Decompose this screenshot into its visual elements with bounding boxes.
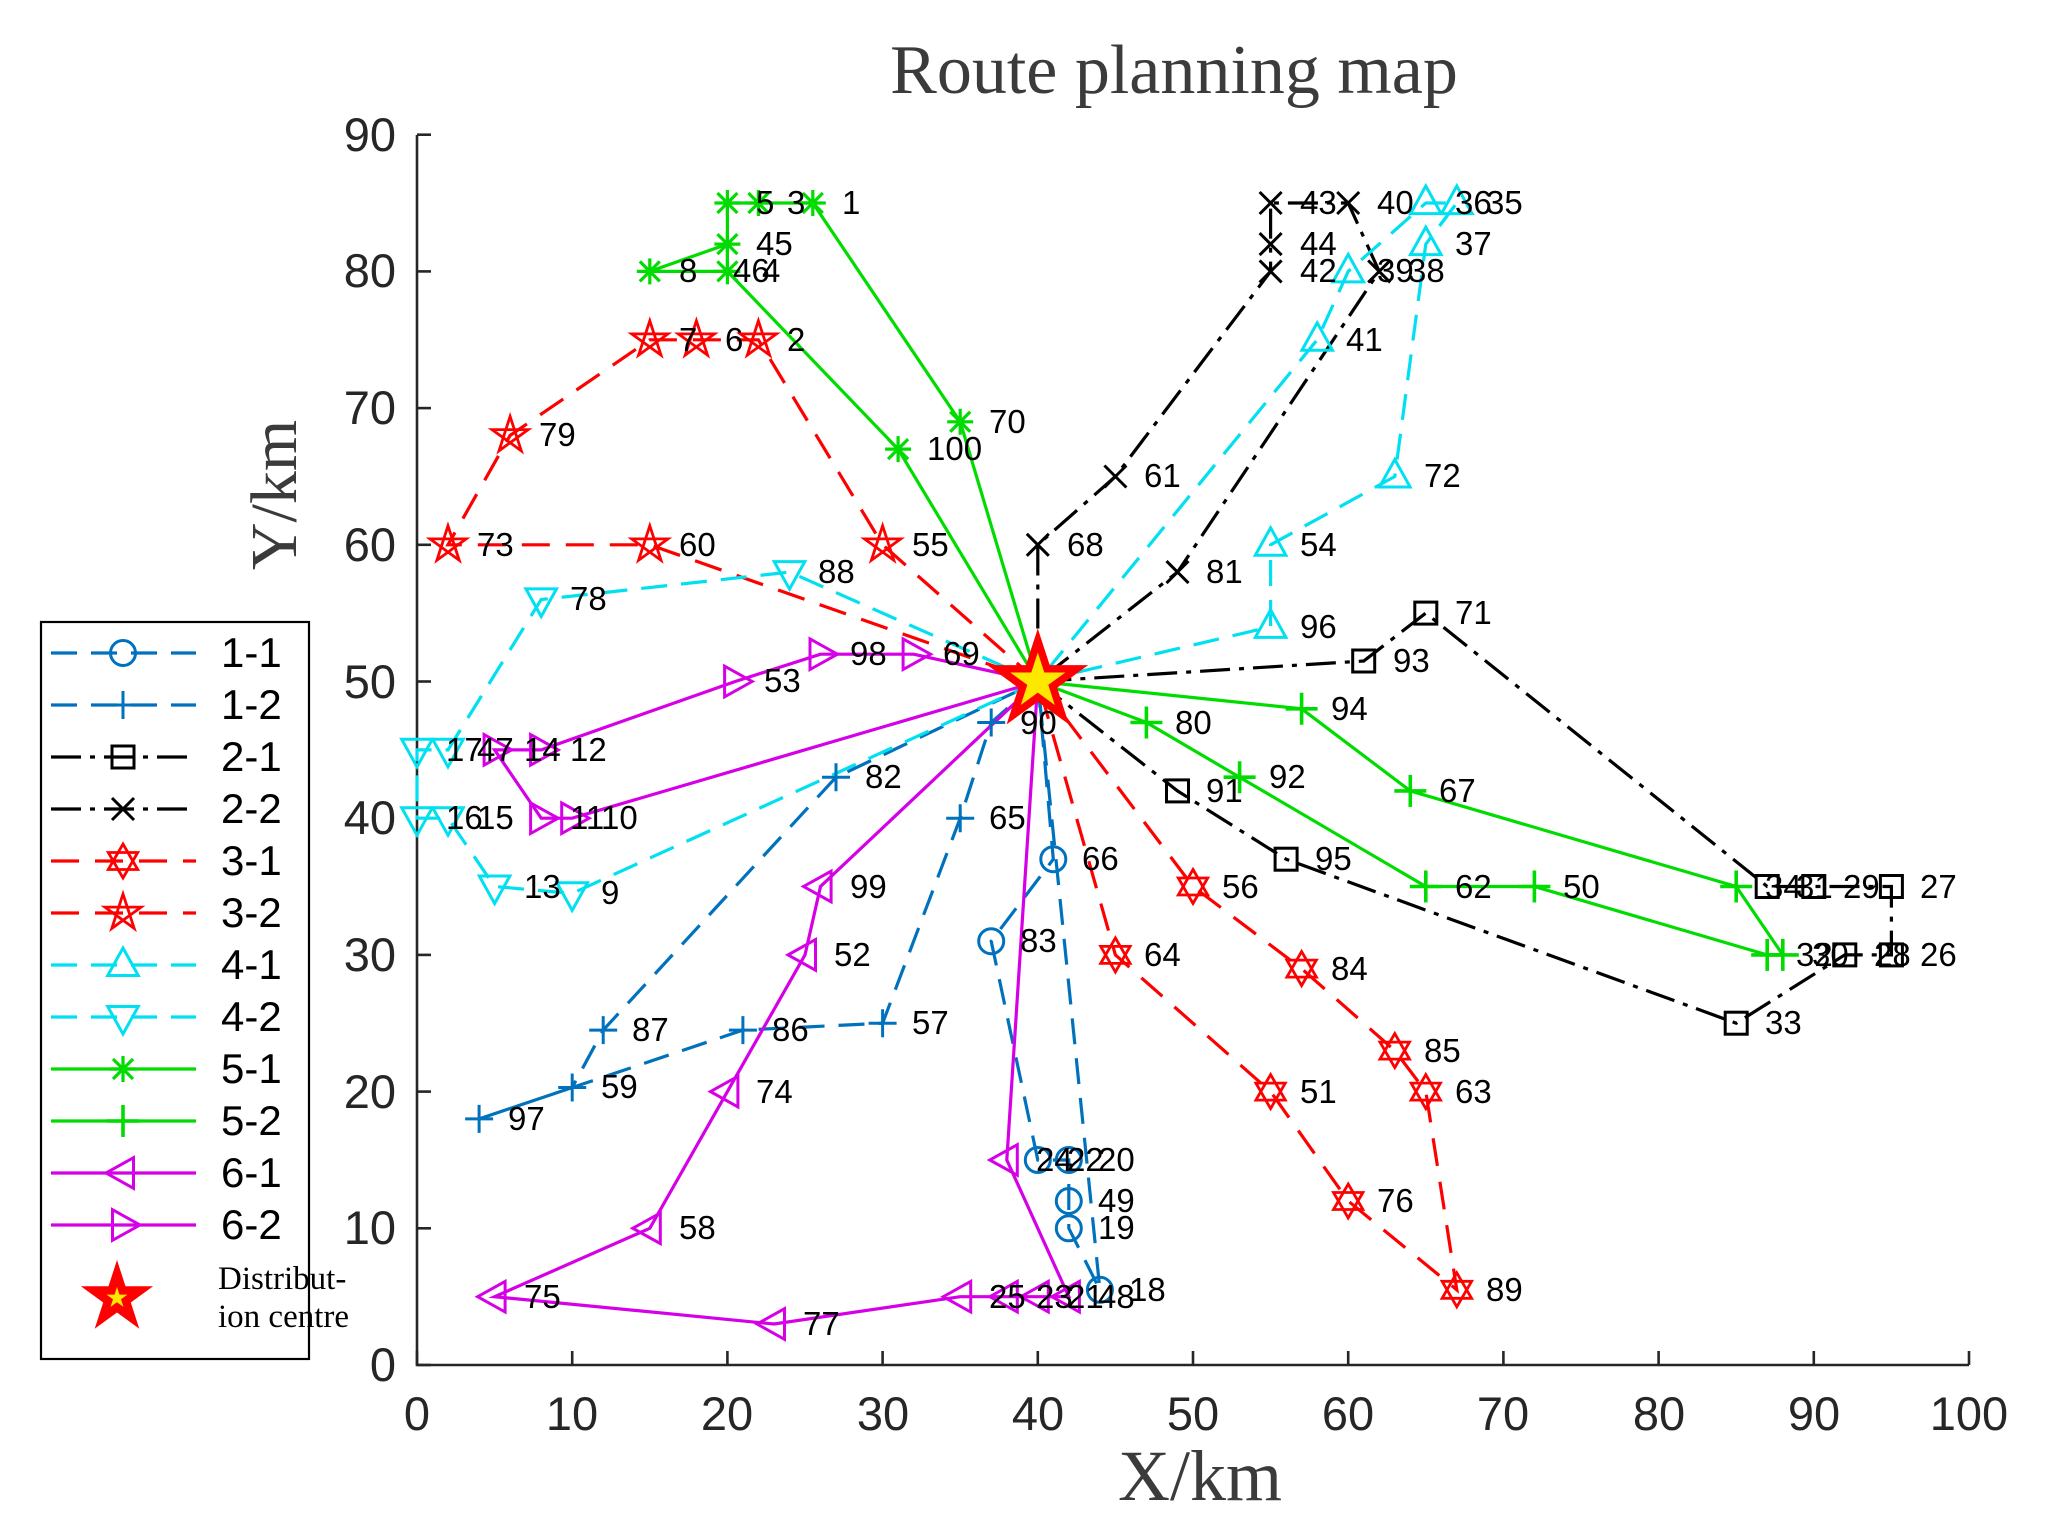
svg-text:74: 74 [756,1073,793,1110]
svg-text:19: 19 [1098,1209,1135,1246]
svg-text:55: 55 [912,526,949,563]
svg-text:30: 30 [857,1387,909,1440]
svg-text:37: 37 [1455,225,1492,262]
svg-text:27: 27 [1920,868,1957,905]
svg-text:5: 5 [756,184,774,221]
svg-text:24: 24 [1036,1141,1073,1178]
svg-text:20: 20 [701,1387,753,1440]
svg-text:73: 73 [477,526,514,563]
svg-text:0: 0 [404,1387,430,1440]
svg-text:5-2: 5-2 [221,1097,282,1144]
svg-text:2-1: 2-1 [221,733,282,780]
svg-text:82: 82 [865,758,902,795]
svg-text:16: 16 [446,799,483,836]
svg-text:80: 80 [1633,1387,1685,1440]
svg-text:47: 47 [477,731,514,768]
svg-text:2-2: 2-2 [221,785,282,832]
svg-text:20: 20 [1098,1141,1135,1178]
svg-text:14: 14 [524,731,561,768]
svg-text:0: 0 [370,1338,396,1391]
svg-text:40: 40 [344,791,396,844]
svg-text:Route planning map: Route planning map [890,32,1458,109]
svg-text:1-2: 1-2 [221,681,282,728]
svg-text:50: 50 [344,655,396,708]
svg-text:4-1: 4-1 [221,941,282,988]
svg-text:51: 51 [1300,1073,1337,1110]
svg-text:70: 70 [989,403,1026,440]
svg-text:50: 50 [1167,1387,1219,1440]
svg-text:10: 10 [601,799,638,836]
svg-text:57: 57 [912,1004,949,1041]
svg-text:79: 79 [539,416,576,453]
svg-text:1: 1 [842,184,860,221]
svg-text:23: 23 [1036,1278,1073,1315]
svg-text:72: 72 [1424,457,1461,494]
svg-text:6: 6 [725,321,743,358]
svg-text:3: 3 [787,184,805,221]
svg-text:Y/km: Y/km [238,420,311,570]
svg-text:63: 63 [1455,1073,1492,1110]
svg-text:10: 10 [546,1387,598,1440]
svg-text:3-2: 3-2 [221,889,282,936]
svg-text:86: 86 [772,1011,809,1048]
svg-text:85: 85 [1424,1032,1461,1069]
svg-text:44: 44 [1300,225,1337,262]
svg-text:99: 99 [850,868,887,905]
svg-text:34: 34 [1765,868,1802,905]
svg-text:100: 100 [1930,1387,2008,1440]
svg-text:60: 60 [344,518,396,571]
svg-text:3-1: 3-1 [221,837,282,884]
svg-text:67: 67 [1439,772,1476,809]
svg-text:75: 75 [524,1278,561,1315]
svg-text:61: 61 [1144,457,1181,494]
svg-text:Distribut-: Distribut- [218,1261,346,1297]
svg-text:92: 92 [1269,758,1306,795]
svg-text:80: 80 [344,244,396,297]
svg-text:28: 28 [1874,936,1911,973]
svg-text:4-2: 4-2 [221,993,282,1040]
svg-text:30: 30 [344,928,396,981]
svg-text:98: 98 [850,635,887,672]
svg-text:84: 84 [1331,950,1368,987]
svg-text:88: 88 [818,553,855,590]
svg-text:8: 8 [679,252,697,289]
svg-text:80: 80 [1175,704,1212,741]
svg-text:20: 20 [344,1065,396,1118]
svg-text:25: 25 [989,1278,1026,1315]
svg-text:58: 58 [679,1209,716,1246]
svg-text:6-1: 6-1 [221,1149,282,1196]
svg-text:68: 68 [1067,526,1104,563]
svg-text:12: 12 [570,731,607,768]
svg-text:83: 83 [1020,922,1057,959]
svg-text:71: 71 [1455,594,1492,631]
svg-text:11: 11 [570,799,604,836]
svg-text:77: 77 [803,1305,840,1342]
svg-text:5-1: 5-1 [221,1045,282,1092]
svg-text:29: 29 [1843,868,1880,905]
svg-text:13: 13 [524,868,561,905]
svg-text:65: 65 [989,799,1026,836]
svg-text:40: 40 [1377,184,1414,221]
svg-text:66: 66 [1082,840,1119,877]
svg-text:52: 52 [834,936,871,973]
svg-text:93: 93 [1393,642,1430,679]
svg-text:64: 64 [1144,936,1181,973]
svg-text:1-1: 1-1 [221,629,282,676]
svg-text:87: 87 [632,1011,669,1048]
svg-text:9: 9 [601,874,619,911]
svg-text:96: 96 [1300,608,1337,645]
svg-text:32: 32 [1796,936,1833,973]
svg-text:78: 78 [570,580,607,617]
svg-text:89: 89 [1486,1271,1523,1308]
svg-text:36: 36 [1455,184,1492,221]
svg-text:90: 90 [1788,1387,1840,1440]
svg-text:91: 91 [1206,772,1243,809]
svg-text:60: 60 [679,526,716,563]
svg-text:76: 76 [1377,1182,1414,1219]
svg-text:39: 39 [1377,252,1414,289]
svg-text:X/km: X/km [1118,1436,1282,1516]
svg-text:50: 50 [1563,868,1600,905]
svg-text:70: 70 [1477,1387,1529,1440]
svg-text:81: 81 [1206,553,1243,590]
svg-text:60: 60 [1322,1387,1374,1440]
svg-text:7: 7 [679,321,697,358]
svg-text:ion centre: ion centre [218,1299,349,1335]
svg-text:54: 54 [1300,526,1337,563]
svg-text:70: 70 [344,381,396,434]
svg-text:41: 41 [1346,321,1383,358]
svg-text:69: 69 [943,635,980,672]
svg-text:56: 56 [1222,868,1259,905]
svg-text:100: 100 [927,430,982,467]
svg-text:90: 90 [344,108,396,161]
svg-text:43: 43 [1300,184,1337,221]
svg-text:33: 33 [1765,1004,1802,1041]
svg-text:26: 26 [1920,936,1957,973]
svg-text:2: 2 [787,321,805,358]
svg-text:6-2: 6-2 [221,1201,282,1248]
svg-text:95: 95 [1315,840,1352,877]
svg-text:94: 94 [1331,690,1368,727]
svg-text:4: 4 [762,252,780,289]
svg-text:97: 97 [508,1100,545,1137]
svg-text:62: 62 [1455,868,1492,905]
svg-text:53: 53 [764,662,801,699]
svg-text:59: 59 [601,1068,638,1105]
svg-text:10: 10 [344,1201,396,1254]
svg-text:90: 90 [1020,704,1057,741]
svg-text:40: 40 [1012,1387,1064,1440]
